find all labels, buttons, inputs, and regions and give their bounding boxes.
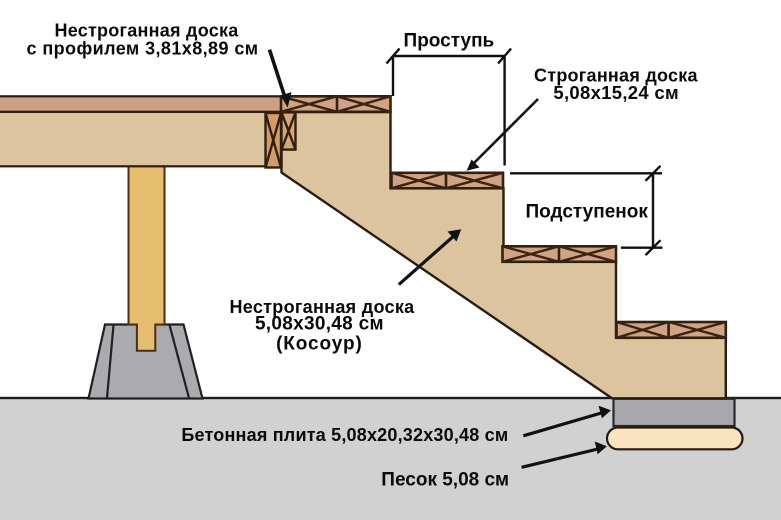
svg-text:5,08х30,48 см: 5,08х30,48 см <box>255 314 384 335</box>
svg-text:5,08х15,24 см: 5,08х15,24 см <box>553 82 679 103</box>
svg-text:с профилем 3,81х8,89 см: с профилем 3,81х8,89 см <box>26 38 258 58</box>
svg-text:Подступенок: Подступенок <box>526 202 649 223</box>
svg-text:Песок 5,08 см: Песок 5,08 см <box>381 470 509 491</box>
svg-text:Проступь: Проступь <box>404 31 495 52</box>
svg-text:Бетонная плита 5,08х20,32х30,4: Бетонная плита 5,08х20,32х30,48 см <box>181 425 508 445</box>
svg-text:Нестроганная доска: Нестроганная доска <box>54 20 239 40</box>
svg-text:(Косоур): (Косоур) <box>276 334 363 355</box>
